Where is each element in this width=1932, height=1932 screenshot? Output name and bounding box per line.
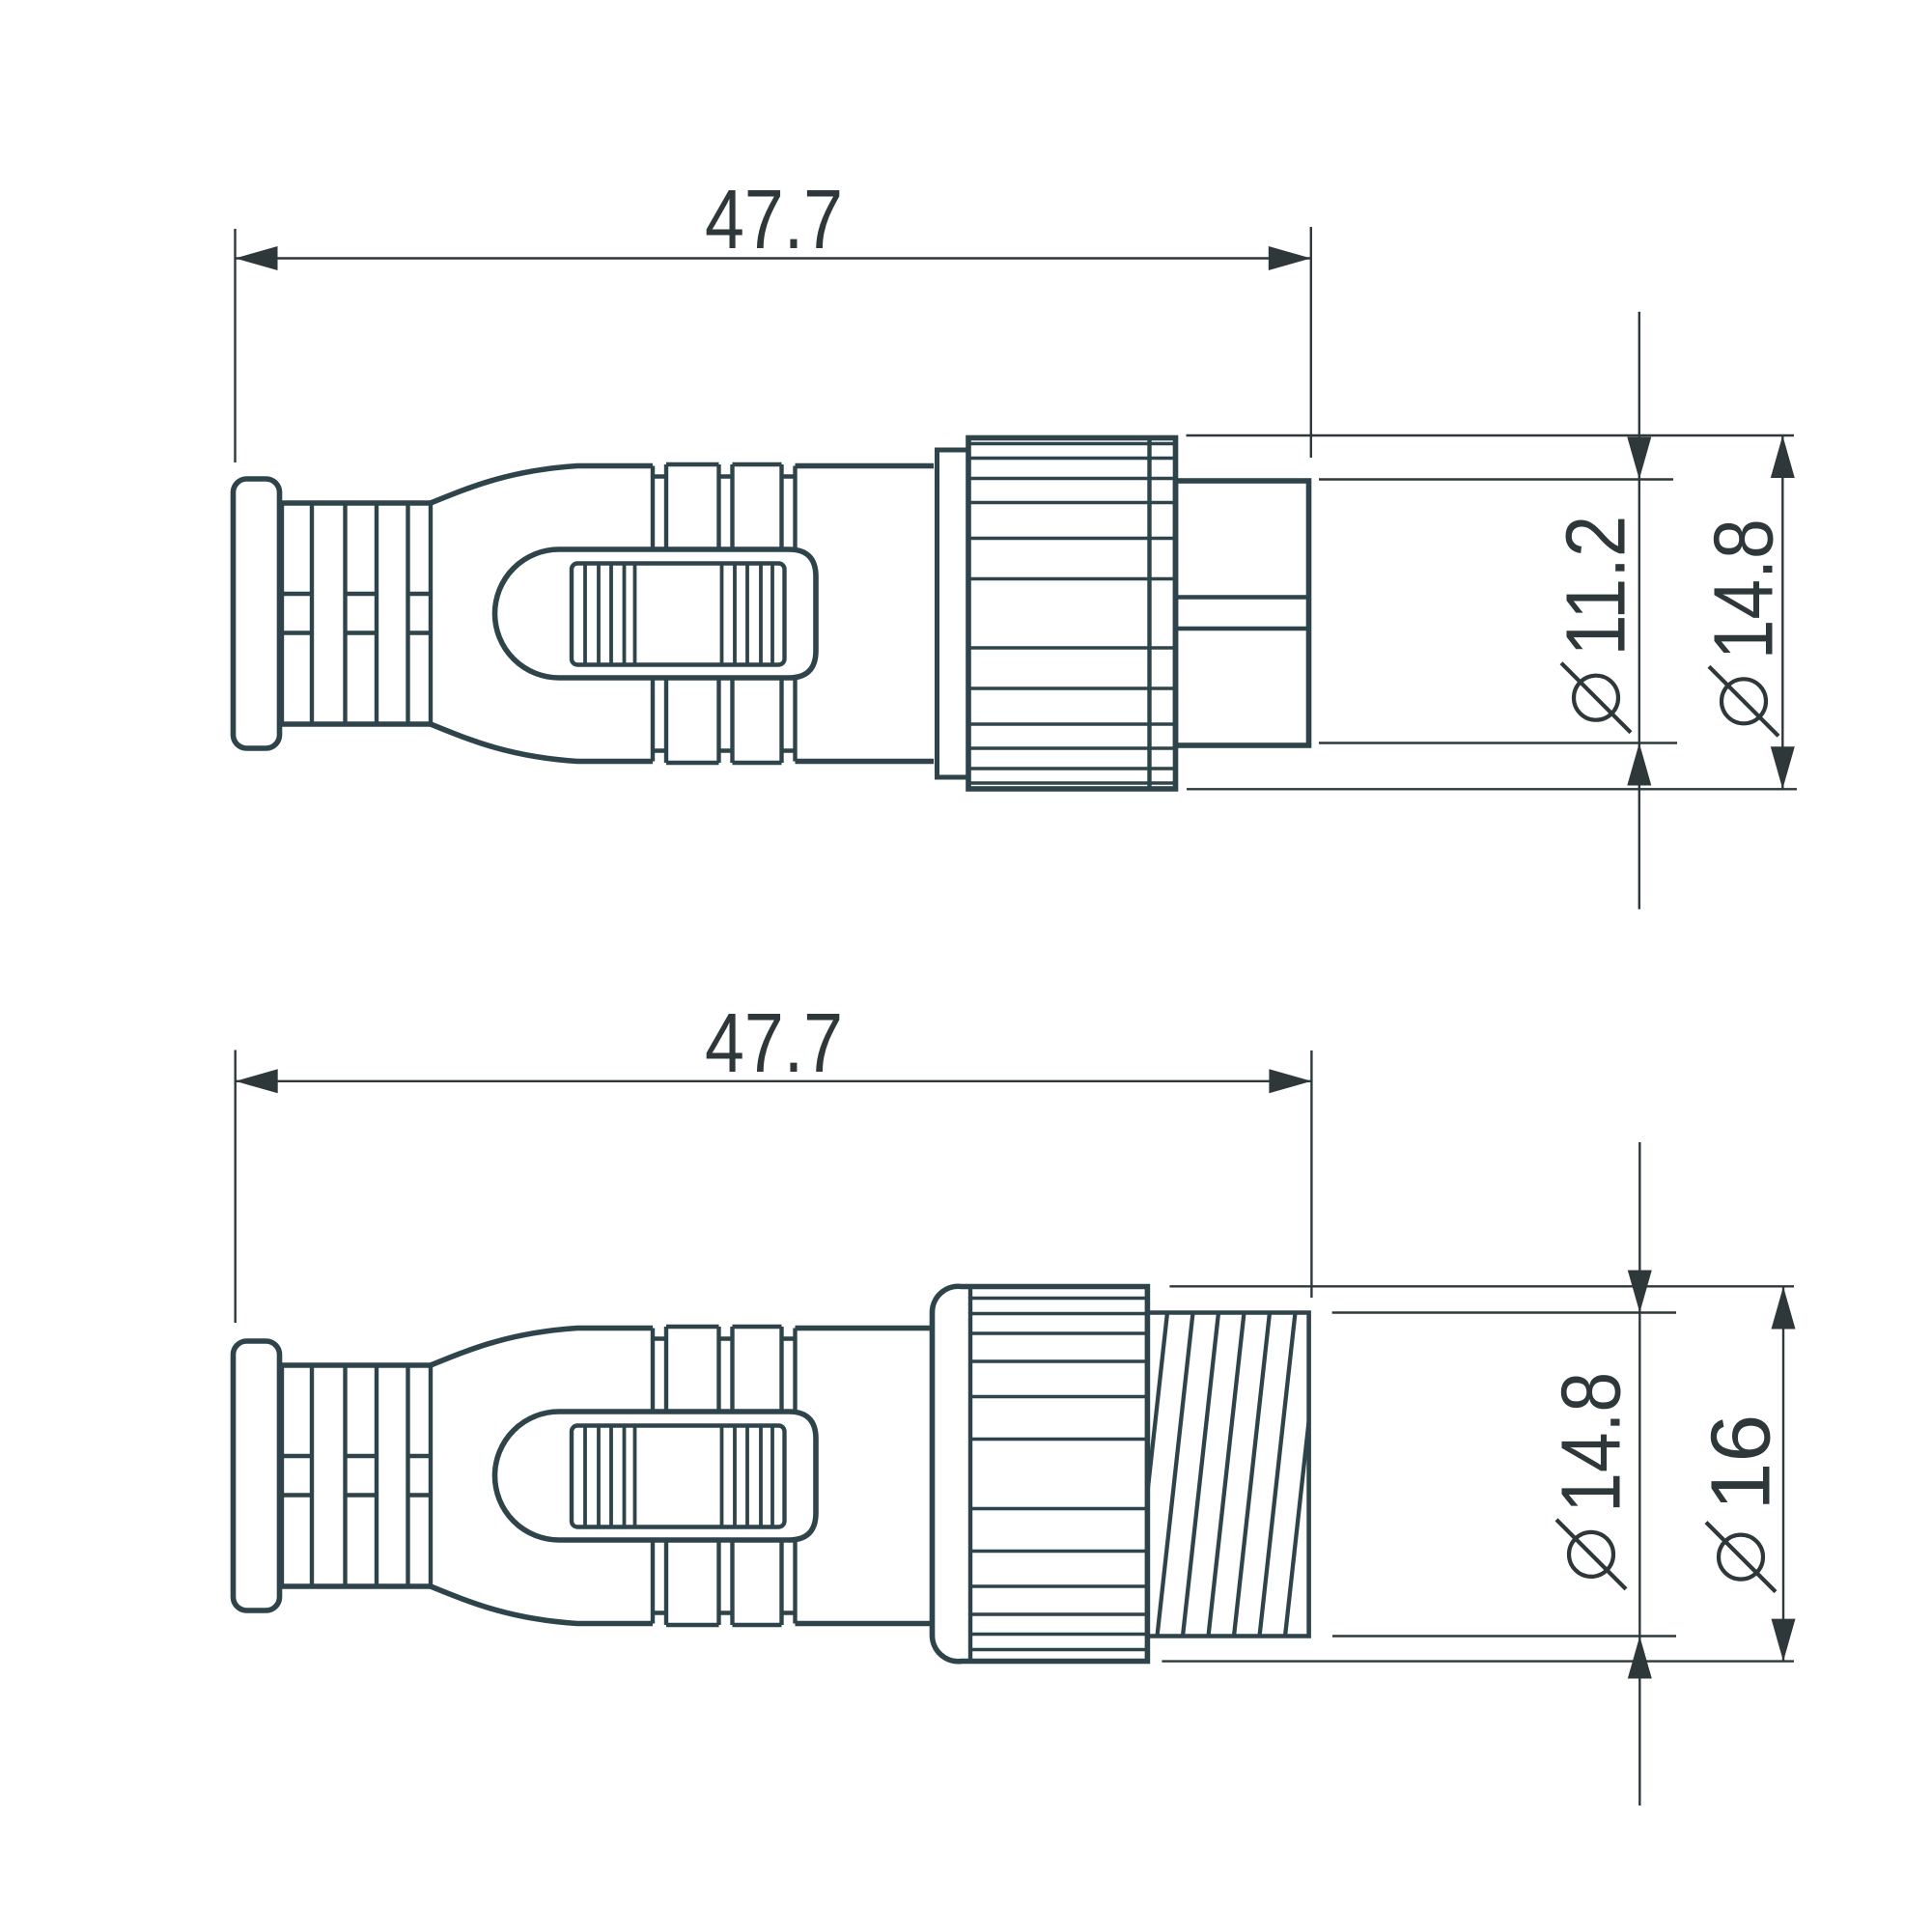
svg-text:14.8: 14.8 — [1545, 1372, 1638, 1513]
svg-text:11.2: 11.2 — [1550, 516, 1643, 657]
svg-text:16: 16 — [1694, 1414, 1788, 1511]
svg-text:14.8: 14.8 — [1697, 518, 1791, 659]
svg-text:47.7: 47.7 — [705, 173, 843, 266]
svg-text:47.7: 47.7 — [705, 996, 843, 1090]
